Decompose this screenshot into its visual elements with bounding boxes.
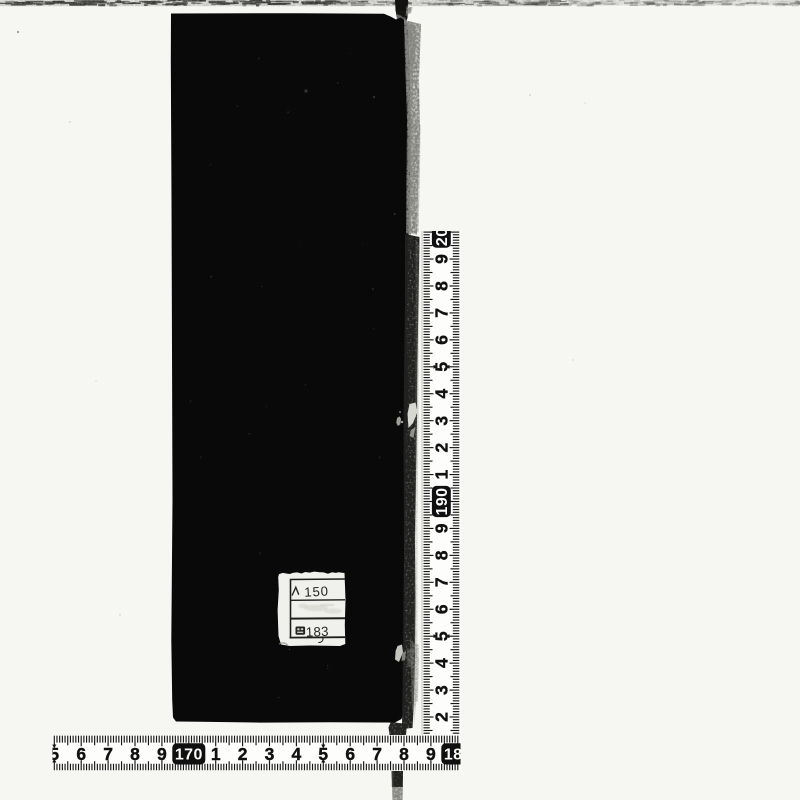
svg-text:2: 2 xyxy=(432,442,452,452)
svg-text:1: 1 xyxy=(432,469,452,479)
svg-text:1: 1 xyxy=(211,744,221,764)
svg-text:9: 9 xyxy=(426,744,436,764)
svg-text:8: 8 xyxy=(399,744,409,764)
svg-text:150: 150 xyxy=(304,583,329,599)
svg-text:7: 7 xyxy=(103,744,113,764)
svg-text:4: 4 xyxy=(432,389,452,399)
svg-text:6: 6 xyxy=(345,744,355,764)
svg-text:8: 8 xyxy=(432,550,452,560)
svg-text:4: 4 xyxy=(432,658,452,668)
svg-text:190: 190 xyxy=(434,488,451,516)
svg-text:2: 2 xyxy=(432,712,452,722)
svg-text:5: 5 xyxy=(318,744,328,764)
svg-text:6: 6 xyxy=(76,744,86,764)
svg-text:9: 9 xyxy=(432,254,452,264)
svg-text:3: 3 xyxy=(265,744,275,764)
svg-text:8: 8 xyxy=(130,744,140,764)
svg-text:7: 7 xyxy=(432,577,452,587)
svg-text:5: 5 xyxy=(432,362,452,372)
svg-text:6: 6 xyxy=(432,604,452,614)
svg-text:4: 4 xyxy=(292,744,302,764)
svg-text:170: 170 xyxy=(175,746,203,763)
svg-text:2: 2 xyxy=(238,744,248,764)
svg-text:6: 6 xyxy=(432,335,452,345)
svg-text:3: 3 xyxy=(432,416,452,426)
svg-text:5: 5 xyxy=(432,631,452,641)
svg-text:3: 3 xyxy=(432,685,452,695)
svg-text:7: 7 xyxy=(432,308,452,318)
svg-text:9: 9 xyxy=(432,523,452,533)
svg-text:8: 8 xyxy=(432,281,452,291)
svg-text:7: 7 xyxy=(372,744,382,764)
svg-text:183: 183 xyxy=(306,624,329,640)
svg-text:9: 9 xyxy=(157,744,167,764)
